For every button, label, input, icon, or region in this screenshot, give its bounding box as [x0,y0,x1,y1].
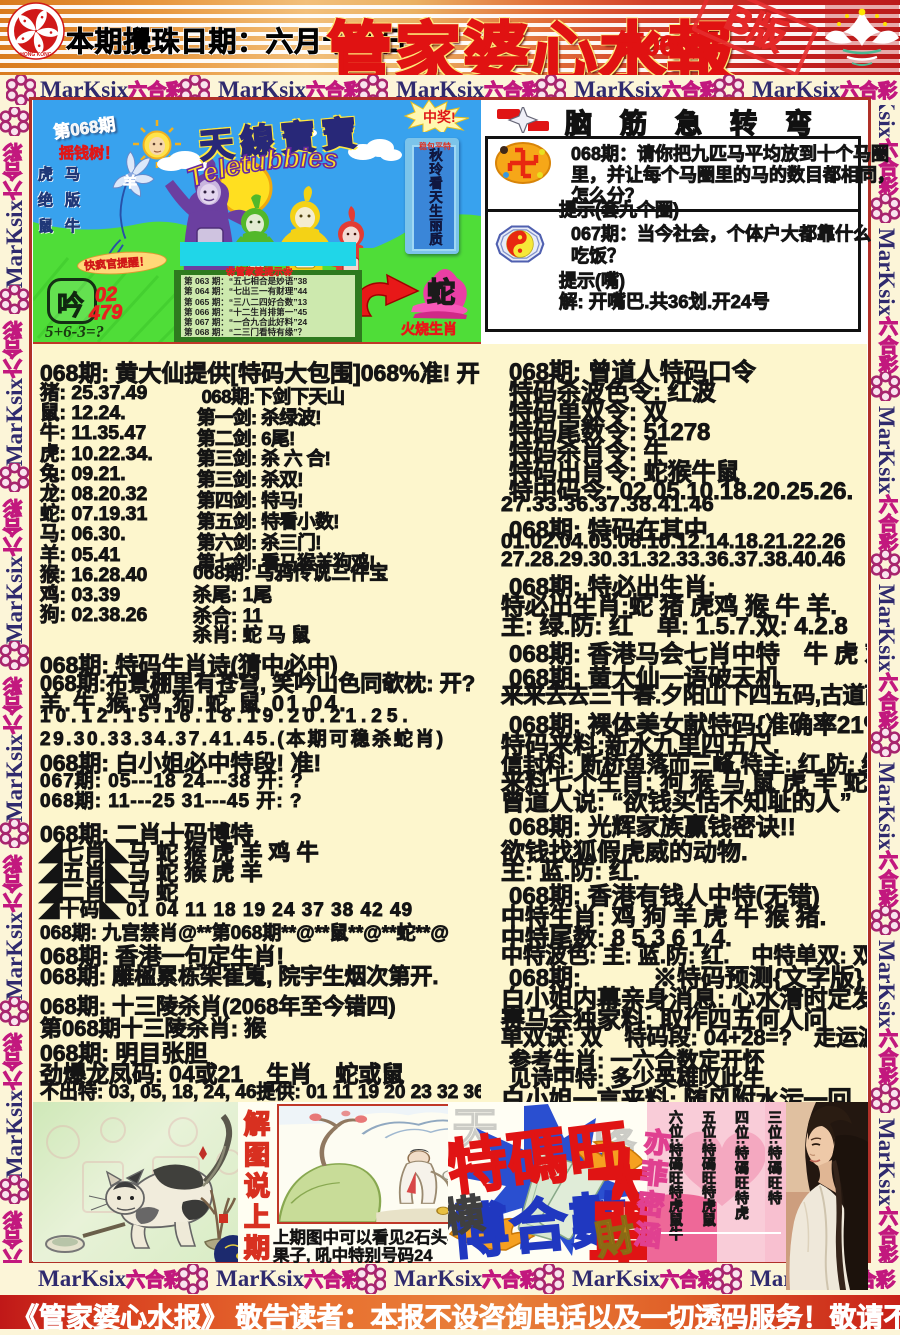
svg-text:蛇: 蛇 [427,276,455,308]
svg-text:横: 横 [448,1192,487,1241]
svg-text:HONG KONG: HONG KONG [20,52,52,58]
svg-text:Teletubbies: Teletubbies [183,143,339,194]
svg-text:中奖!: 中奖! [423,109,456,125]
